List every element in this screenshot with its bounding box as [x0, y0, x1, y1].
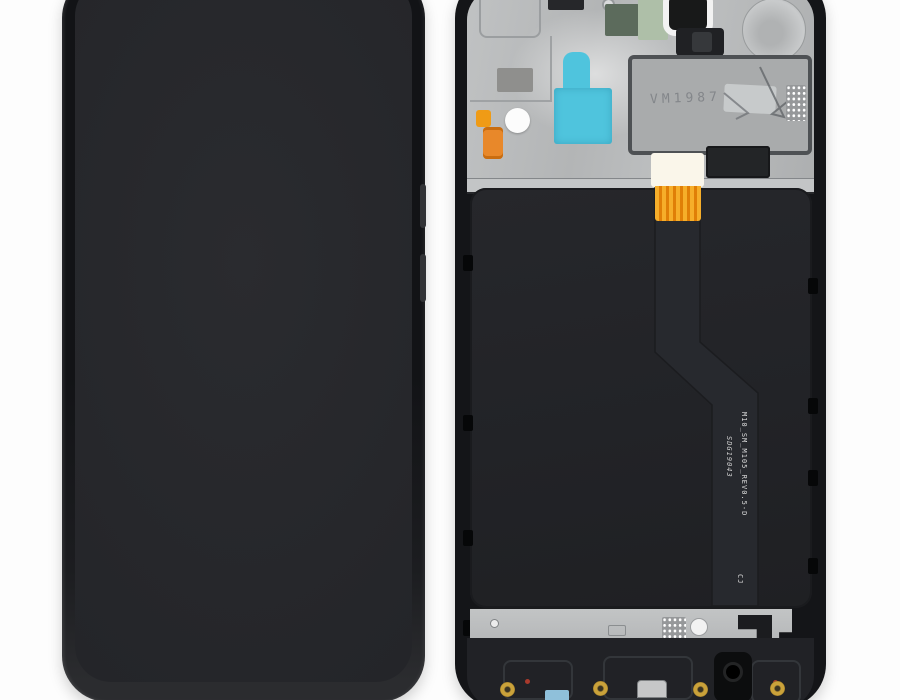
- lcd-connector-pad: [651, 153, 704, 187]
- bracket-screw: [490, 619, 499, 628]
- headphone-jack-ring: [723, 662, 743, 682]
- flex-marking-suffix: CJ: [736, 574, 744, 584]
- frame-clip-left: [463, 255, 473, 271]
- thread-lock-dot: [525, 679, 530, 684]
- bracket-contact-grid: [662, 617, 686, 640]
- side-button-volume: [420, 184, 426, 228]
- display-front-screen: [75, 0, 412, 682]
- connector-socket: [706, 146, 770, 178]
- product-photo: VM1987 M10_SM_M105_REV0.5-D CJ SDG19043: [0, 0, 900, 700]
- lcd-flex-ribbon: [655, 186, 701, 221]
- bottom-housing: [467, 638, 814, 700]
- frame-clip-right: [808, 558, 818, 574]
- bracket-etch-slot: [608, 625, 626, 636]
- screw-gold: [593, 681, 608, 696]
- frame-clip-right: [808, 278, 818, 294]
- display-flex-cable: [455, 0, 826, 700]
- screw-gold: [500, 682, 515, 697]
- flex-marking-line2: SDG19043: [725, 436, 733, 478]
- display-back-assembly: VM1987 M10_SM_M105_REV0.5-D CJ SDG19043: [455, 0, 826, 700]
- screw-gold: [693, 682, 708, 697]
- screw-gold: [770, 681, 785, 696]
- usb-port-tab: [637, 680, 667, 698]
- bracket-disc: [690, 618, 708, 636]
- frame-clip-left: [463, 530, 473, 546]
- frame-clip-left: [463, 415, 473, 431]
- headphone-jack: [714, 652, 752, 700]
- side-button-power: [420, 254, 426, 302]
- frame-clip-right: [808, 398, 818, 414]
- sticker-blue: [545, 690, 569, 700]
- display-front-panel: [62, 0, 425, 700]
- flex-marking-line1: M10_SM_M105_REV0.5-D: [740, 412, 748, 516]
- frame-clip-right: [808, 470, 818, 486]
